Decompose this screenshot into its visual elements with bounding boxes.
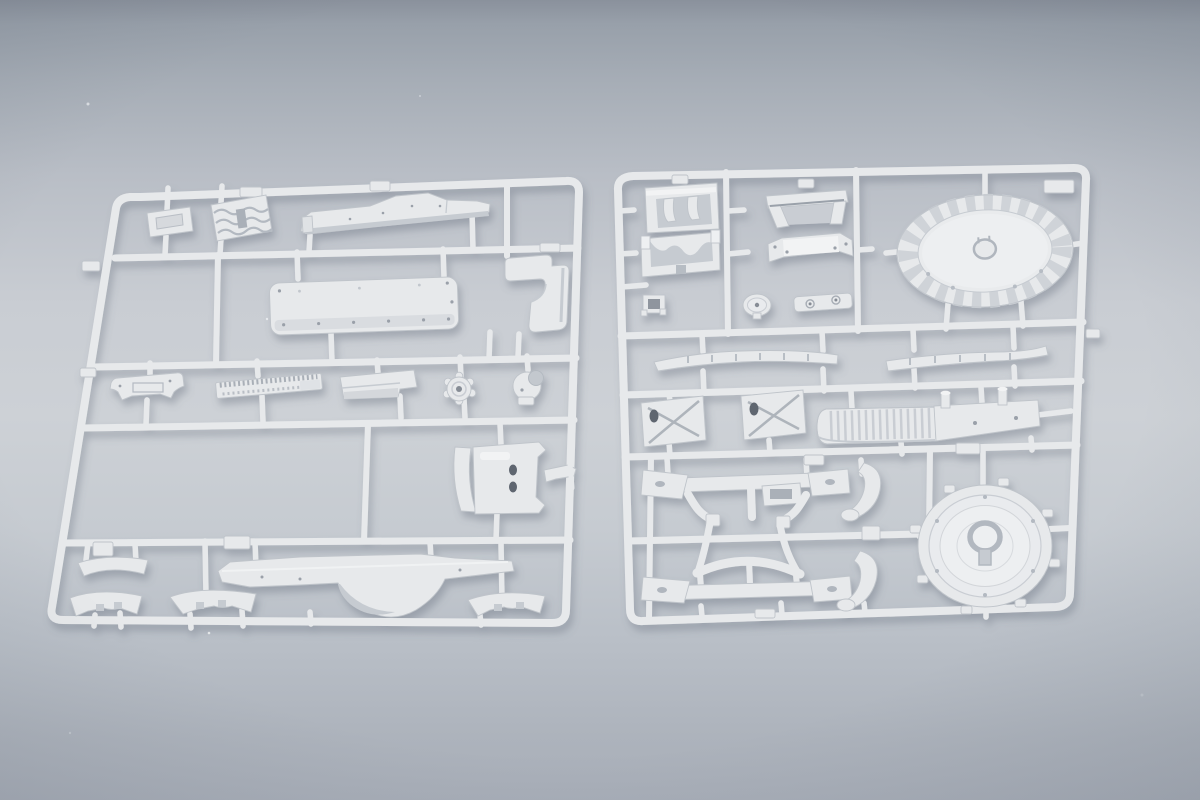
photo-canvas <box>0 0 1200 800</box>
photo-stage <box>0 0 1200 800</box>
vignette <box>0 0 1200 800</box>
